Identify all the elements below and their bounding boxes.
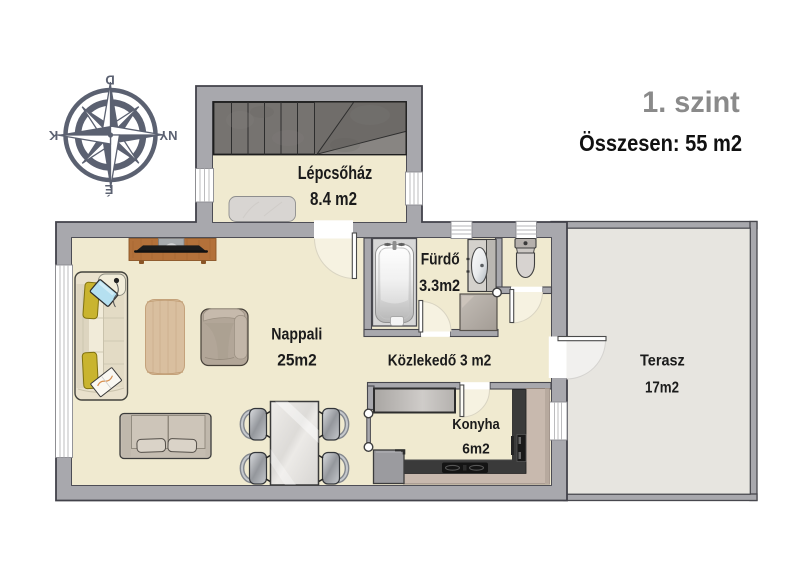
svg-text:NY: NY <box>159 128 177 143</box>
svg-text:Összesen: 55 m2: Összesen: 55 m2 <box>579 130 742 156</box>
svg-text:K: K <box>48 128 58 143</box>
svg-text:8.4 m2: 8.4 m2 <box>310 189 357 209</box>
svg-text:Lépcsőház: Lépcsőház <box>298 162 373 183</box>
svg-text:1. szint: 1. szint <box>642 86 740 119</box>
svg-text:6m2: 6m2 <box>462 441 490 458</box>
svg-text:É: É <box>104 182 113 197</box>
svg-text:Nappali: Nappali <box>271 326 322 344</box>
svg-text:3.3m2: 3.3m2 <box>419 277 460 295</box>
svg-text:Konyha: Konyha <box>452 416 500 433</box>
svg-text:D: D <box>105 73 114 88</box>
svg-text:Terasz: Terasz <box>640 353 685 370</box>
svg-text:Közlekedő 3 m2: Közlekedő 3 m2 <box>388 353 492 370</box>
svg-text:25m2: 25m2 <box>277 352 317 370</box>
svg-text:17m2: 17m2 <box>645 380 679 397</box>
svg-text:Fürdő: Fürdő <box>421 250 460 269</box>
